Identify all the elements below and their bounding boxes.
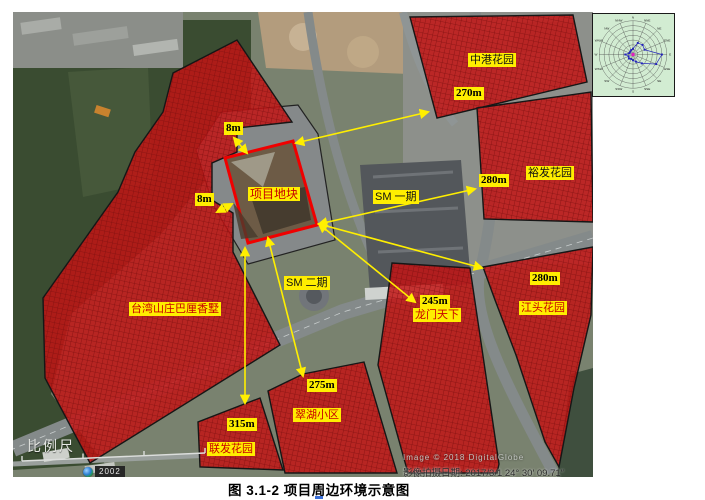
label-zhonggang: 中港花园 [468,53,516,67]
area-polygon-yufa [477,92,593,222]
gap-label-north: 8m [224,122,243,135]
label-lianfa: 联发花园 [207,442,255,456]
label-taiwan-villa: 台湾山庄巴厘香墅 [129,302,221,316]
svg-text:SSE: SSE [644,87,650,91]
label-longmen: 龙门天下 [413,308,461,322]
svg-text:SE: SE [657,79,661,83]
distance-label-jiangtou: 280m [530,272,560,285]
project-site-label: 项目地块 [248,187,300,201]
svg-text:NW: NW [604,26,609,30]
label-sm-phase1: SM 一期 [373,190,419,204]
label-yufa: 裕发花园 [526,166,574,180]
svg-text:E: E [669,53,671,57]
label-cuihu: 翠湖小区 [293,408,341,422]
distance-label-yufa: 280m [479,174,509,187]
distance-label-cuihu: 275m [307,379,337,392]
svg-text:WNW: WNW [595,38,603,42]
globe-icon [83,467,93,477]
wind-rose-plot: NNNENEENEEESESESSESSSWSWWSWWWNWNWNNW [593,14,673,95]
svg-text:N: N [632,15,634,19]
label-jiangtou: 江头花园 [519,301,567,315]
satellite-map: 台湾山庄巴厘香墅 中港花园 裕发花园 江头花园 龙门天下 翠湖小区 联发花园 2… [13,12,593,477]
wind-rose-inset: NNNENEENEEESESESSESSSWSWWSWWWNWNWNNW [592,13,675,97]
svg-text:ESE: ESE [664,67,670,71]
svg-text:NE: NE [657,26,661,30]
svg-text:SSW: SSW [615,87,622,91]
gap-label-west: 8m [195,193,214,206]
svg-text:NNE: NNE [644,18,651,22]
imagery-badge: 2002 [83,466,125,477]
distance-label-lianfa: 315m [227,418,257,431]
distance-label-longmen: 245m [420,295,450,308]
scale-bar-label: 比例尺 [27,436,75,456]
figure-page: 台湾山庄巴厘香墅 中港花园 裕发花园 江头花园 龙门天下 翠湖小区 联发花园 2… [0,0,705,500]
imagery-date-watermark: 影像拍摄日期: 2017/3/1 24° 30′ 09.71″ [403,465,564,479]
svg-text:WSW: WSW [595,67,603,71]
svg-text:SW: SW [604,79,609,83]
label-sm-phase2: SM 二期 [284,276,330,290]
svg-text:S: S [632,90,634,94]
svg-text:NNW: NNW [615,18,622,22]
imagery-year: 2002 [95,466,125,477]
svg-text:W: W [594,53,597,57]
distance-label-zhonggang: 270m [454,87,484,100]
caption-cursor-mark [315,496,323,499]
imagery-credit-watermark: Image © 2018 DigitalGlobe [403,453,524,462]
svg-text:ENE: ENE [664,38,670,42]
